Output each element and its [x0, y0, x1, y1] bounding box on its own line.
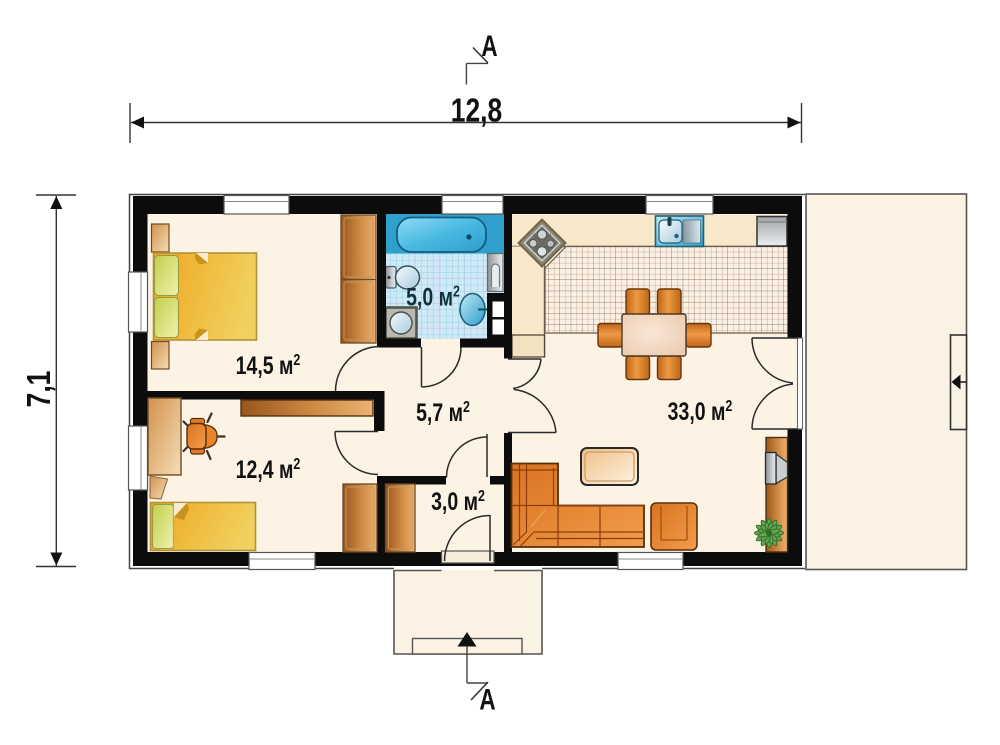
- svg-text:7,1: 7,1: [21, 371, 57, 408]
- svg-text:A: A: [479, 682, 495, 716]
- svg-text:33,0 м2: 33,0 м2: [668, 398, 733, 426]
- svg-text:5,0 м2: 5,0 м2: [406, 283, 460, 311]
- svg-text:3,0 м2: 3,0 м2: [431, 488, 485, 516]
- svg-text:12,8: 12,8: [451, 93, 502, 129]
- svg-text:12,4 м2: 12,4 м2: [236, 456, 301, 484]
- svg-text:A: A: [481, 29, 497, 63]
- svg-text:5,7 м2: 5,7 м2: [416, 399, 470, 427]
- svg-text:14,5 м2: 14,5 м2: [236, 352, 301, 380]
